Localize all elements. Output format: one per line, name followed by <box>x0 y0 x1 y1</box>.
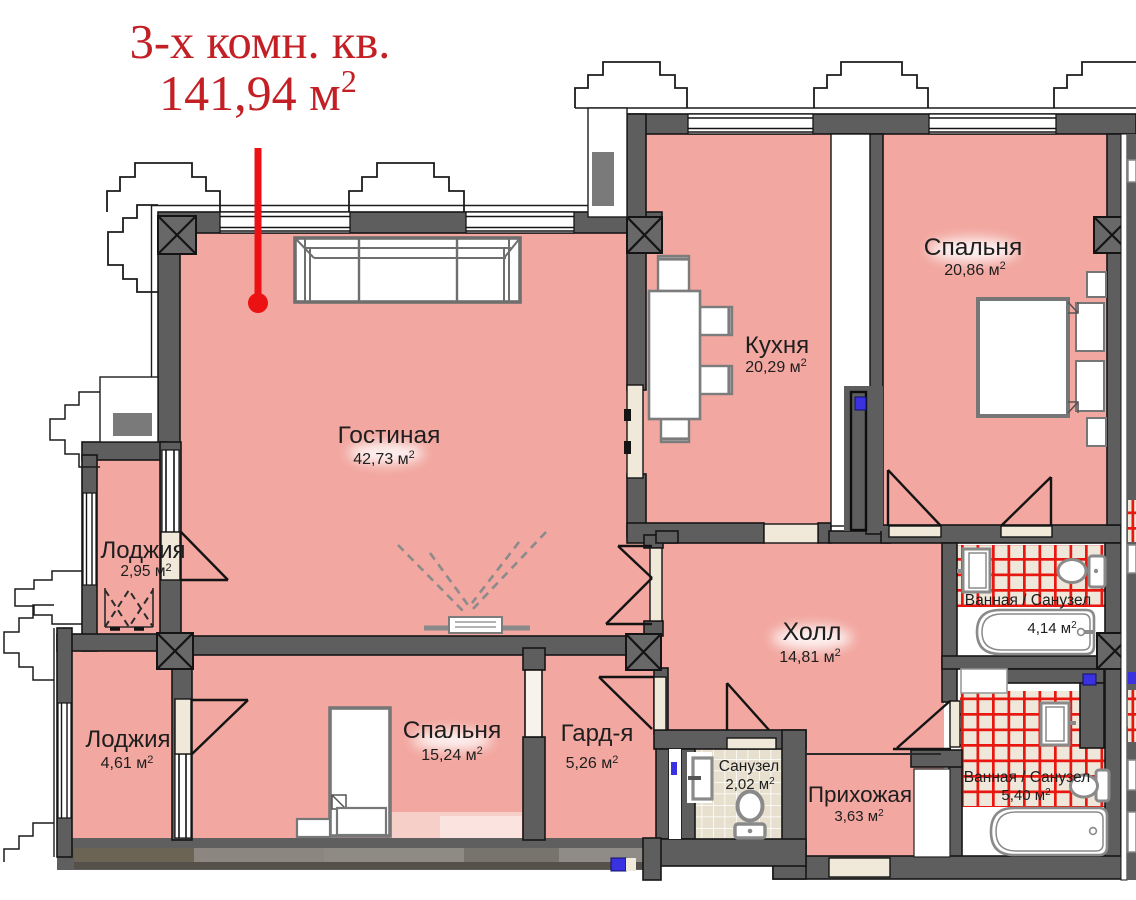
svg-text:3-х комн. кв.: 3-х комн. кв. <box>130 16 391 69</box>
svg-text:Кухня: Кухня <box>745 332 809 359</box>
svg-text:5,26 м2: 5,26 м2 <box>566 754 619 772</box>
svg-text:5,40 м2: 5,40 м2 <box>1001 787 1051 804</box>
svg-text:20,86 м2: 20,86 м2 <box>944 260 1006 279</box>
svg-text:Прихожая: Прихожая <box>808 782 912 807</box>
svg-text:14,81 м2: 14,81 м2 <box>779 647 841 666</box>
svg-text:Гостиная: Гостиная <box>338 422 441 449</box>
svg-text:Лоджия: Лоджия <box>85 726 170 753</box>
svg-text:Спальня: Спальня <box>924 234 1022 261</box>
svg-text:3,63 м2: 3,63 м2 <box>834 808 884 825</box>
svg-text:Гард-я: Гард-я <box>561 720 634 747</box>
svg-text:141,94 м2: 141,94 м2 <box>159 63 357 121</box>
svg-text:Спальня: Спальня <box>403 717 501 744</box>
svg-text:Лоджия: Лоджия <box>100 537 185 564</box>
svg-text:2,95 м2: 2,95 м2 <box>120 562 171 580</box>
svg-text:Ванная / Санузел: Ванная / Санузел <box>964 769 1090 786</box>
svg-text:Ванная / Санузел: Ванная / Санузел <box>965 592 1091 609</box>
svg-text:42,73 м2: 42,73 м2 <box>353 449 415 468</box>
svg-text:20,29 м2: 20,29 м2 <box>745 357 807 376</box>
svg-text:15,24 м2: 15,24 м2 <box>421 745 483 764</box>
svg-text:4,61 м2: 4,61 м2 <box>101 754 154 772</box>
svg-text:Холл: Холл <box>783 618 842 646</box>
svg-text:Санузел: Санузел <box>719 758 779 775</box>
svg-text:4,14 м2: 4,14 м2 <box>1027 620 1077 637</box>
svg-text:2,02 м2: 2,02 м2 <box>725 776 775 793</box>
